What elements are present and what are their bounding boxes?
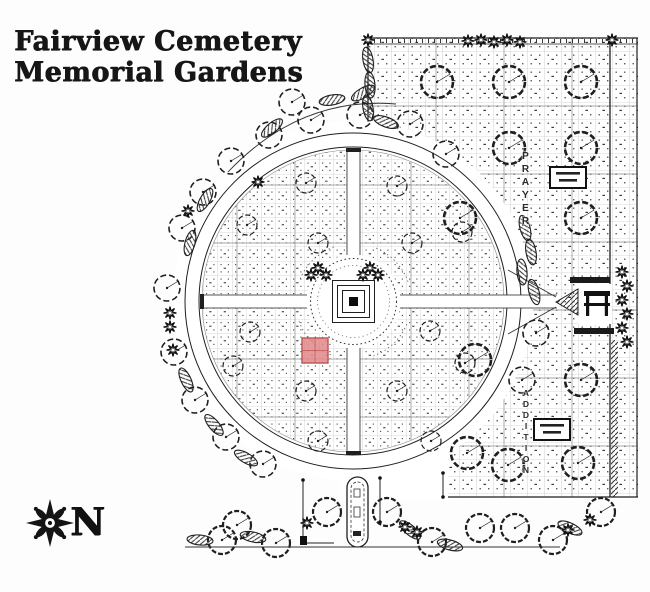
north-label: N	[70, 499, 105, 544]
shrub-star-icon	[362, 34, 375, 47]
hedge-icon	[318, 93, 345, 107]
monument-core	[349, 297, 358, 306]
hedge-strip	[611, 340, 618, 497]
pavilion-sign-top	[570, 277, 610, 283]
page-title: Fairview Cemetery Memorial Gardens	[14, 26, 303, 89]
tree-icon	[313, 498, 341, 526]
highlighted-plot	[302, 338, 328, 363]
shrub-star-icon	[320, 269, 333, 282]
shrub-star-icon	[621, 280, 634, 293]
tree-icon	[466, 514, 494, 542]
tree-icon	[501, 514, 529, 542]
shrub-star-icon	[501, 34, 514, 47]
hedge-icon	[187, 534, 214, 546]
title-line-2: Memorial Gardens	[14, 57, 303, 88]
shrub-star-icon	[462, 35, 475, 48]
addition-section-label: ADDITION	[521, 388, 531, 476]
compass-rose-icon	[24, 496, 76, 550]
shrub-star-icon	[182, 205, 195, 218]
shrub-star-icon	[621, 336, 634, 349]
shrub-star-icon	[399, 521, 412, 534]
prayer-section-label: PRAYER	[520, 151, 531, 229]
shrub-star-icon	[164, 307, 177, 320]
shrub-star-icon	[616, 322, 629, 335]
shrub-star-icon	[252, 176, 265, 189]
pavilion-roof	[584, 291, 610, 296]
shrub-star-icon	[164, 321, 177, 334]
cemetery-map-page: Fairview Cemetery Memorial Gardens PRAYE…	[0, 0, 650, 592]
tree-icon	[262, 529, 290, 557]
plot-label-box	[534, 419, 570, 440]
shrub-star-icon	[616, 294, 629, 307]
plot-label-box	[550, 167, 586, 188]
shrub-star-icon	[621, 308, 634, 321]
shrub-star-icon	[488, 36, 501, 49]
tree-icon	[373, 498, 401, 526]
shrub-star-icon	[372, 269, 385, 282]
hedge-icon	[239, 529, 267, 544]
shrub-star-icon	[584, 514, 597, 527]
shrub-star-icon	[562, 524, 575, 537]
shrub-star-icon	[305, 269, 318, 282]
shrub-star-icon	[357, 269, 370, 282]
shrub-star-icon	[167, 344, 180, 357]
shrub-star-icon	[616, 266, 629, 279]
shrub-star-icon	[606, 34, 619, 47]
title-line-1: Fairview Cemetery	[14, 26, 303, 57]
shrub-star-icon	[514, 36, 527, 49]
entrance-median	[347, 477, 368, 547]
tree-icon	[279, 89, 305, 115]
hedge-icon	[436, 537, 464, 553]
shrub-star-icon	[411, 526, 424, 539]
shrub-star-icon	[475, 34, 488, 47]
pavilion-sign-bottom	[574, 328, 614, 334]
